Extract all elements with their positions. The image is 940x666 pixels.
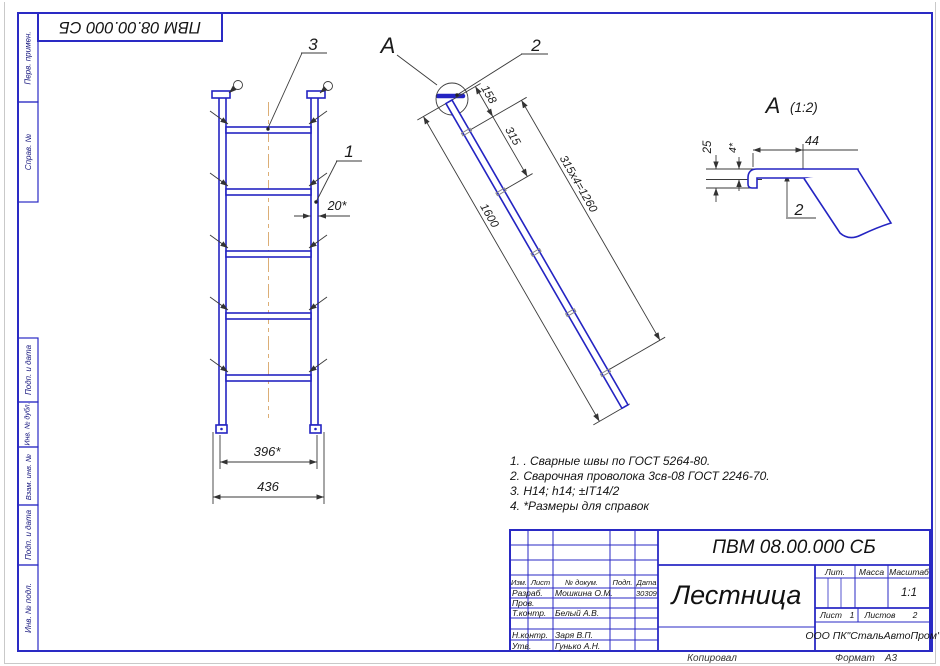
front-callout-rail-label: 1 <box>344 142 353 161</box>
titleblock-col-doc: № докум. <box>553 576 610 588</box>
titleblock-lit-label: Лит. <box>815 565 855 578</box>
detail-a-view: A (1:2) 44 25 4* 2 <box>702 93 891 238</box>
top-designation: ПВМ 08.00.000 СБ <box>38 13 222 41</box>
stamp-label-podp-data-2: Подп. и дата <box>18 505 38 565</box>
titleblock-scale-value: 1:1 <box>888 578 930 607</box>
footer-format-value: А3 <box>878 651 904 665</box>
footer-kopiroval: Копировал <box>667 651 757 665</box>
titleblock-role-razrab: Разраб. <box>512 588 553 598</box>
titleblock-col-date: Дата <box>635 576 658 588</box>
side-dim-top: 158 <box>478 83 498 106</box>
titleblock-role-nkontr: Н.контр. <box>512 630 553 640</box>
detail-callout: 2 <box>794 202 804 219</box>
titleblock-part-name: Лестница <box>658 567 815 623</box>
titleblock-person-razrab: Мошкина О.М. <box>555 588 610 598</box>
titleblock-role-utv: Утв. <box>512 641 553 651</box>
detail-a-mark: A <box>764 93 781 118</box>
front-view: 3 1 20* 396* 436 <box>210 35 362 504</box>
titleblock-person-tkontr: Белый А.В. <box>555 608 610 618</box>
titleblock-sheets-label: Листов <box>860 608 900 622</box>
stamp-label-inv-podl: Инв. № подл. <box>18 565 38 651</box>
stamp-label-inv-dubl: Инв. № дубл. <box>18 402 38 447</box>
titleblock-col-list: Лист <box>528 576 553 588</box>
titleblock-mass-label: Масса <box>855 565 888 578</box>
titleblock-col-izm: Изм. <box>510 576 528 588</box>
titleblock-col-podp: Подп. <box>610 576 635 588</box>
note-line: 2. Сварочная проволока 3св-08 ГОСТ 2246-… <box>510 469 770 483</box>
titleblock-sheet-value: 1 <box>846 608 858 622</box>
titleblock-designation: ПВМ 08.00.000 СБ <box>658 531 930 564</box>
titleblock-scale-label: Масштаб <box>888 565 930 578</box>
front-dim-rail-width: 20* <box>327 199 348 213</box>
titleblock-person-nkontr: Заря В.П. <box>555 630 610 640</box>
front-dim-outer: 436 <box>257 479 279 494</box>
front-dim-inner: 396* <box>254 444 282 459</box>
note-line: 4. *Размеры для справок <box>510 499 649 513</box>
stamp-label-perv-primen: Перв. примен. <box>18 14 38 103</box>
titleblock-date-razrab: 30309 <box>636 589 658 598</box>
side-callout-hook: 2 <box>530 36 541 55</box>
tech-notes: 1. . Сварные швы по ГОСТ 5264-80. 2. Сва… <box>510 454 820 516</box>
front-view-annotations <box>210 53 362 504</box>
side-dim-chain: 315x4=1260 <box>557 154 600 216</box>
side-detail-mark: A <box>379 33 396 58</box>
stamp-label-podp-data-1: Подп. и дата <box>18 338 38 402</box>
titleblock-company: ООО ПК"СтальАвтоПром" <box>816 623 930 649</box>
titleblock-role-prov: Пров. <box>512 598 553 608</box>
detail-a-scale: (1:2) <box>790 100 818 115</box>
titleblock-role-tkontr: Т.контр. <box>512 608 553 618</box>
footer-format-label: Формат <box>831 651 879 665</box>
side-dim-step: 315 <box>502 125 522 148</box>
note-line: 3. Н14; h14; ±IT14/2 <box>510 484 619 498</box>
drawing-sheet: 3 1 20* 396* 436 <box>0 0 940 666</box>
detail-dim-length: 44 <box>805 134 819 148</box>
detail-dim-offset: 4* <box>727 142 739 153</box>
titleblock-sheet-label: Лист <box>816 608 846 622</box>
front-callout-rung-label: 3 <box>308 35 318 54</box>
side-view: 158 315 315x4=1260 1600 A 2 <box>379 33 692 425</box>
stamp-label-sprav-no: Справ. № <box>18 102 38 202</box>
note-line: 1. . Сварные швы по ГОСТ 5264-80. <box>510 454 710 468</box>
stamp-label-vzam-inv: Взам. инв. № <box>18 448 38 506</box>
detail-dim-height: 25 <box>702 140 714 154</box>
titleblock-person-utv: Гунько А.Н. <box>555 641 610 651</box>
titleblock-sheets-value: 2 <box>903 608 927 622</box>
